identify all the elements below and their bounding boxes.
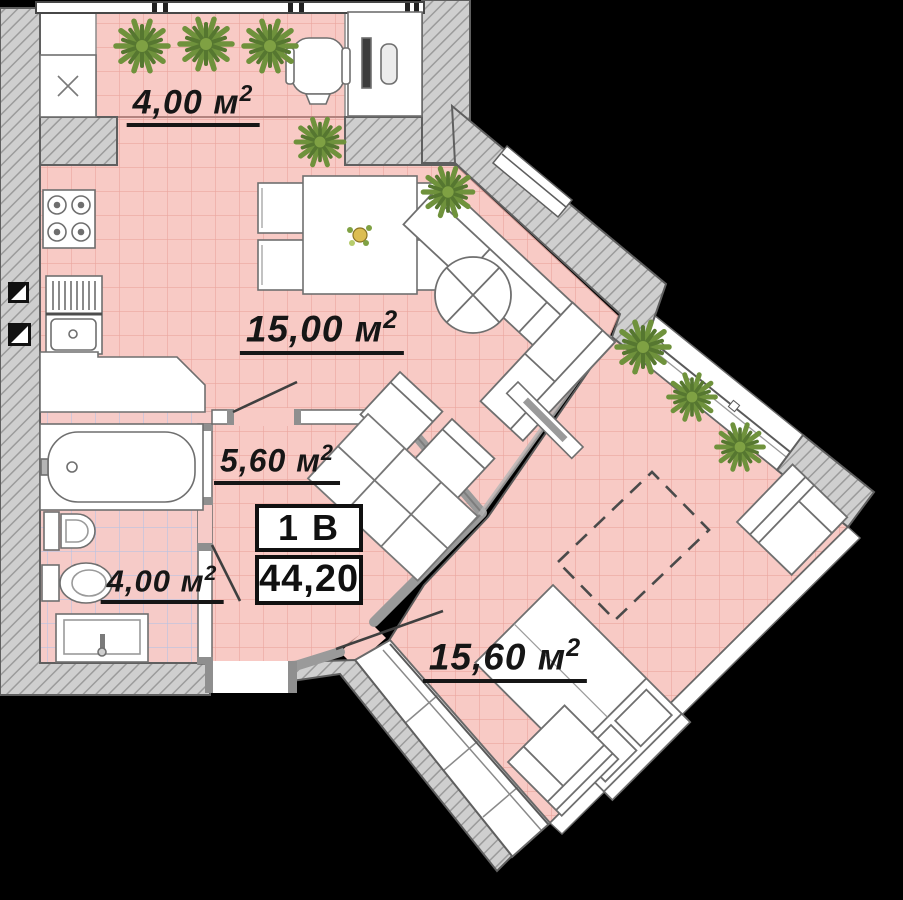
area-label-kitchen-living: 15,00 м2 [240, 306, 404, 355]
area-label-loggia: 4,00 м2 [127, 80, 260, 127]
chair [258, 183, 305, 233]
cabinet-icon [40, 55, 96, 117]
vent-icon [8, 282, 29, 303]
coffee-table-icon [435, 257, 511, 333]
entrance-opening [205, 661, 297, 693]
unit-type-label: 1 В [255, 504, 363, 552]
living-hall-door-opening [233, 408, 295, 426]
vanity-sink-icon [56, 614, 148, 662]
vent-icon [8, 323, 31, 346]
kitchen-sink-icon [46, 276, 102, 354]
area-label-bathroom: 4,00 м2 [101, 562, 224, 604]
unit-total-area: 44,20 [255, 555, 363, 605]
toilet-icon [44, 512, 95, 550]
area-label-hallway: 5,60 м2 [214, 440, 340, 485]
unit-card: 1 В 44,20 [255, 504, 363, 605]
keyboard-icon [381, 44, 397, 84]
area-label-bedroom: 15,60 м2 [423, 634, 587, 683]
floor-plan-stage: 4,00 м2 15,00 м2 5,60 м2 4,00 м2 15,60 м… [0, 0, 903, 900]
kitchen-counter [40, 352, 205, 412]
bathtub-icon [40, 424, 203, 510]
chair [258, 240, 305, 290]
monitor-icon [362, 38, 371, 88]
stove-icon [43, 190, 95, 248]
floor-plan-drawing [0, 0, 903, 900]
wall-loggia-left [40, 117, 117, 165]
